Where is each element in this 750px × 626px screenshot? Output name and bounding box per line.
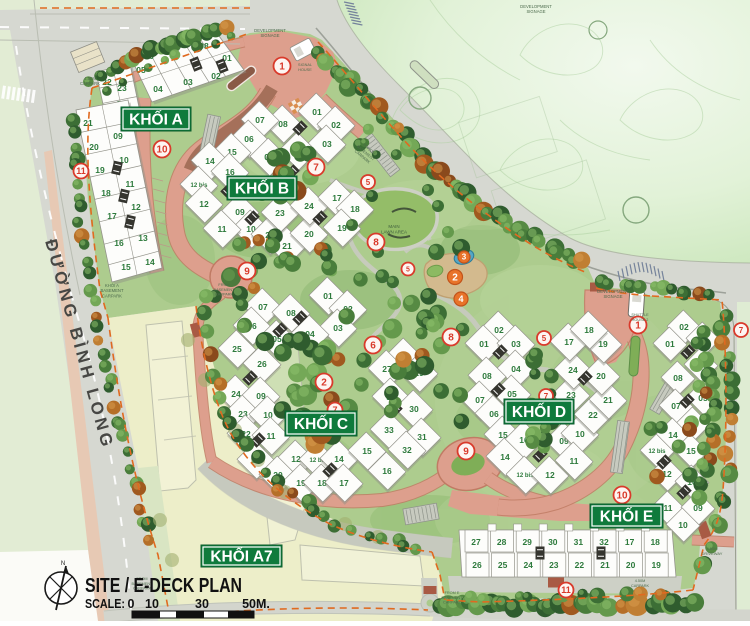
svg-text:02: 02 (331, 120, 341, 130)
svg-text:9: 9 (244, 267, 250, 278)
svg-text:11: 11 (76, 166, 86, 176)
svg-text:03: 03 (322, 139, 332, 149)
svg-text:33: 33 (384, 425, 394, 435)
svg-text:03: 03 (183, 77, 193, 87)
svg-text:30: 30 (548, 537, 558, 547)
svg-text:32: 32 (599, 537, 609, 547)
svg-text:KHỐI D: KHỐI D (512, 403, 566, 421)
svg-text:08: 08 (673, 373, 683, 383)
svg-text:31: 31 (417, 432, 427, 442)
svg-text:FROM: FROM (218, 283, 229, 287)
svg-text:FROM E: FROM E (445, 591, 460, 595)
svg-text:MAIN: MAIN (388, 224, 399, 229)
svg-text:23: 23 (275, 208, 285, 218)
svg-text:26: 26 (257, 359, 267, 369)
svg-text:15: 15 (121, 262, 131, 272)
svg-text:SCALE:: SCALE: (85, 597, 125, 611)
svg-text:26: 26 (472, 560, 482, 570)
svg-text:HOUSE 2: HOUSE 2 (632, 318, 649, 322)
svg-text:02: 02 (494, 325, 504, 335)
svg-text:17: 17 (625, 537, 635, 547)
svg-text:HOUSE: HOUSE (298, 68, 312, 72)
svg-text:1: 1 (635, 321, 641, 332)
svg-text:02: 02 (679, 322, 689, 332)
svg-text:17: 17 (332, 193, 342, 203)
svg-text:13: 13 (138, 233, 148, 243)
svg-text:31: 31 (574, 537, 584, 547)
svg-text:14: 14 (668, 430, 678, 440)
svg-text:18: 18 (350, 204, 360, 214)
svg-text:21: 21 (282, 241, 292, 251)
svg-text:03: 03 (511, 339, 521, 349)
svg-text:KHỐI E: KHỐI E (600, 508, 653, 526)
svg-text:10: 10 (156, 145, 168, 156)
svg-text:01: 01 (323, 291, 333, 301)
svg-text:20: 20 (89, 142, 99, 152)
svg-text:12: 12 (545, 470, 555, 480)
svg-text:4.50M: 4.50M (635, 579, 646, 583)
svg-text:8: 8 (448, 333, 454, 344)
svg-text:CARPARK: CARPARK (102, 293, 122, 298)
svg-text:11: 11 (218, 224, 227, 234)
svg-text:17: 17 (107, 211, 117, 221)
svg-text:LAWN AREA: LAWN AREA (381, 230, 407, 235)
svg-text:18: 18 (101, 188, 111, 198)
svg-text:4: 4 (458, 294, 463, 304)
svg-text:10: 10 (616, 491, 628, 502)
svg-text:01: 01 (312, 107, 322, 117)
svg-text:32: 32 (402, 445, 412, 455)
svg-text:22: 22 (575, 560, 585, 570)
svg-text:SHUTTLE: SHUTTLE (631, 313, 649, 317)
svg-text:02: 02 (211, 71, 221, 81)
svg-text:CARPARK: CARPARK (631, 584, 650, 588)
svg-text:SIGNAL: SIGNAL (298, 63, 312, 67)
svg-text:SIGNAGE: SIGNAGE (603, 294, 622, 299)
svg-text:09: 09 (113, 131, 123, 141)
svg-text:20: 20 (304, 229, 314, 239)
svg-text:08: 08 (286, 308, 296, 318)
svg-text:01: 01 (479, 339, 489, 349)
svg-text:16: 16 (114, 238, 124, 248)
svg-text:N: N (61, 561, 65, 567)
svg-text:19: 19 (337, 223, 347, 233)
svg-text:15: 15 (686, 446, 696, 456)
svg-text:11: 11 (126, 179, 135, 189)
svg-text:6: 6 (370, 341, 376, 352)
svg-text:10: 10 (678, 520, 688, 530)
svg-text:22: 22 (588, 410, 598, 420)
svg-text:05: 05 (507, 389, 517, 399)
svg-text:CARPARK: CARPARK (80, 81, 100, 86)
svg-text:11: 11 (664, 503, 673, 513)
svg-text:12: 12 (131, 202, 141, 212)
svg-text:17: 17 (339, 478, 349, 488)
svg-text:11: 11 (561, 585, 571, 595)
svg-text:12: 12 (199, 199, 209, 209)
svg-text:7: 7 (313, 163, 319, 174)
svg-text:03: 03 (333, 323, 343, 333)
svg-text:KHỐI A7: KHỐI A7 (210, 548, 272, 566)
svg-text:10: 10 (145, 597, 159, 611)
svg-text:08: 08 (482, 371, 492, 381)
svg-text:25: 25 (232, 344, 242, 354)
svg-text:20: 20 (626, 560, 636, 570)
svg-text:8: 8 (373, 238, 379, 249)
svg-text:SITE / E-DECK PLAN: SITE / E-DECK PLAN (85, 574, 242, 597)
svg-text:KHỐI B: KHỐI B (235, 180, 289, 198)
svg-text:10: 10 (575, 429, 585, 439)
svg-text:30: 30 (409, 404, 419, 414)
svg-text:CARPARK: CARPARK (215, 293, 234, 297)
svg-text:BASEMENT: BASEMENT (442, 596, 464, 600)
svg-text:14: 14 (145, 257, 155, 267)
svg-text:01: 01 (665, 339, 675, 349)
svg-text:18: 18 (650, 537, 660, 547)
svg-text:19: 19 (651, 560, 661, 570)
svg-text:5: 5 (542, 334, 547, 343)
svg-text:21: 21 (600, 560, 610, 570)
svg-text:5: 5 (406, 267, 410, 274)
svg-text:9: 9 (463, 447, 469, 458)
svg-text:17: 17 (564, 337, 574, 347)
svg-text:24: 24 (523, 560, 533, 570)
svg-text:27: 27 (471, 537, 481, 547)
svg-text:21: 21 (603, 395, 613, 405)
svg-text:08: 08 (278, 119, 288, 129)
svg-text:2: 2 (452, 272, 458, 283)
svg-text:1: 1 (279, 62, 285, 73)
svg-text:07: 07 (258, 302, 268, 312)
svg-text:07: 07 (475, 395, 485, 405)
svg-text:14: 14 (205, 156, 215, 166)
svg-text:KHỐI A: KHỐI A (129, 111, 183, 129)
svg-text:06: 06 (244, 134, 254, 144)
svg-text:5: 5 (366, 178, 371, 187)
svg-text:18: 18 (584, 325, 594, 335)
svg-text:7: 7 (739, 326, 744, 335)
svg-text:09: 09 (235, 207, 245, 217)
svg-text:50M.: 50M. (242, 597, 270, 611)
svg-text:11: 11 (570, 456, 579, 466)
svg-text:14: 14 (500, 452, 510, 462)
svg-text:DRIVEWAY: DRIVEWAY (702, 551, 723, 556)
svg-text:24: 24 (568, 365, 578, 375)
svg-text:29: 29 (522, 537, 532, 547)
svg-text:0: 0 (128, 597, 135, 611)
svg-text:11: 11 (267, 431, 276, 441)
svg-text:30: 30 (195, 597, 209, 611)
svg-text:19: 19 (95, 165, 105, 175)
svg-text:14: 14 (334, 454, 344, 464)
svg-text:16: 16 (382, 466, 392, 476)
svg-text:2: 2 (321, 378, 327, 389)
svg-text:23: 23 (549, 560, 559, 570)
svg-text:15: 15 (362, 446, 372, 456)
svg-text:24: 24 (304, 201, 314, 211)
svg-text:CARPARK: CARPARK (443, 601, 462, 605)
svg-text:28: 28 (497, 537, 507, 547)
svg-text:04: 04 (153, 84, 163, 94)
svg-text:BASEMENT: BASEMENT (214, 288, 236, 292)
svg-text:04: 04 (511, 364, 521, 374)
svg-text:20: 20 (596, 371, 606, 381)
svg-text:SIGNAGE: SIGNAGE (526, 9, 545, 14)
svg-text:12 bis: 12 bis (648, 449, 666, 455)
svg-text:25: 25 (498, 560, 508, 570)
svg-text:SIGNAGE: SIGNAGE (260, 33, 279, 38)
svg-text:07: 07 (255, 115, 265, 125)
svg-text:3: 3 (462, 253, 467, 262)
svg-text:06: 06 (489, 409, 499, 419)
svg-text:KHỐI C: KHỐI C (294, 415, 348, 433)
